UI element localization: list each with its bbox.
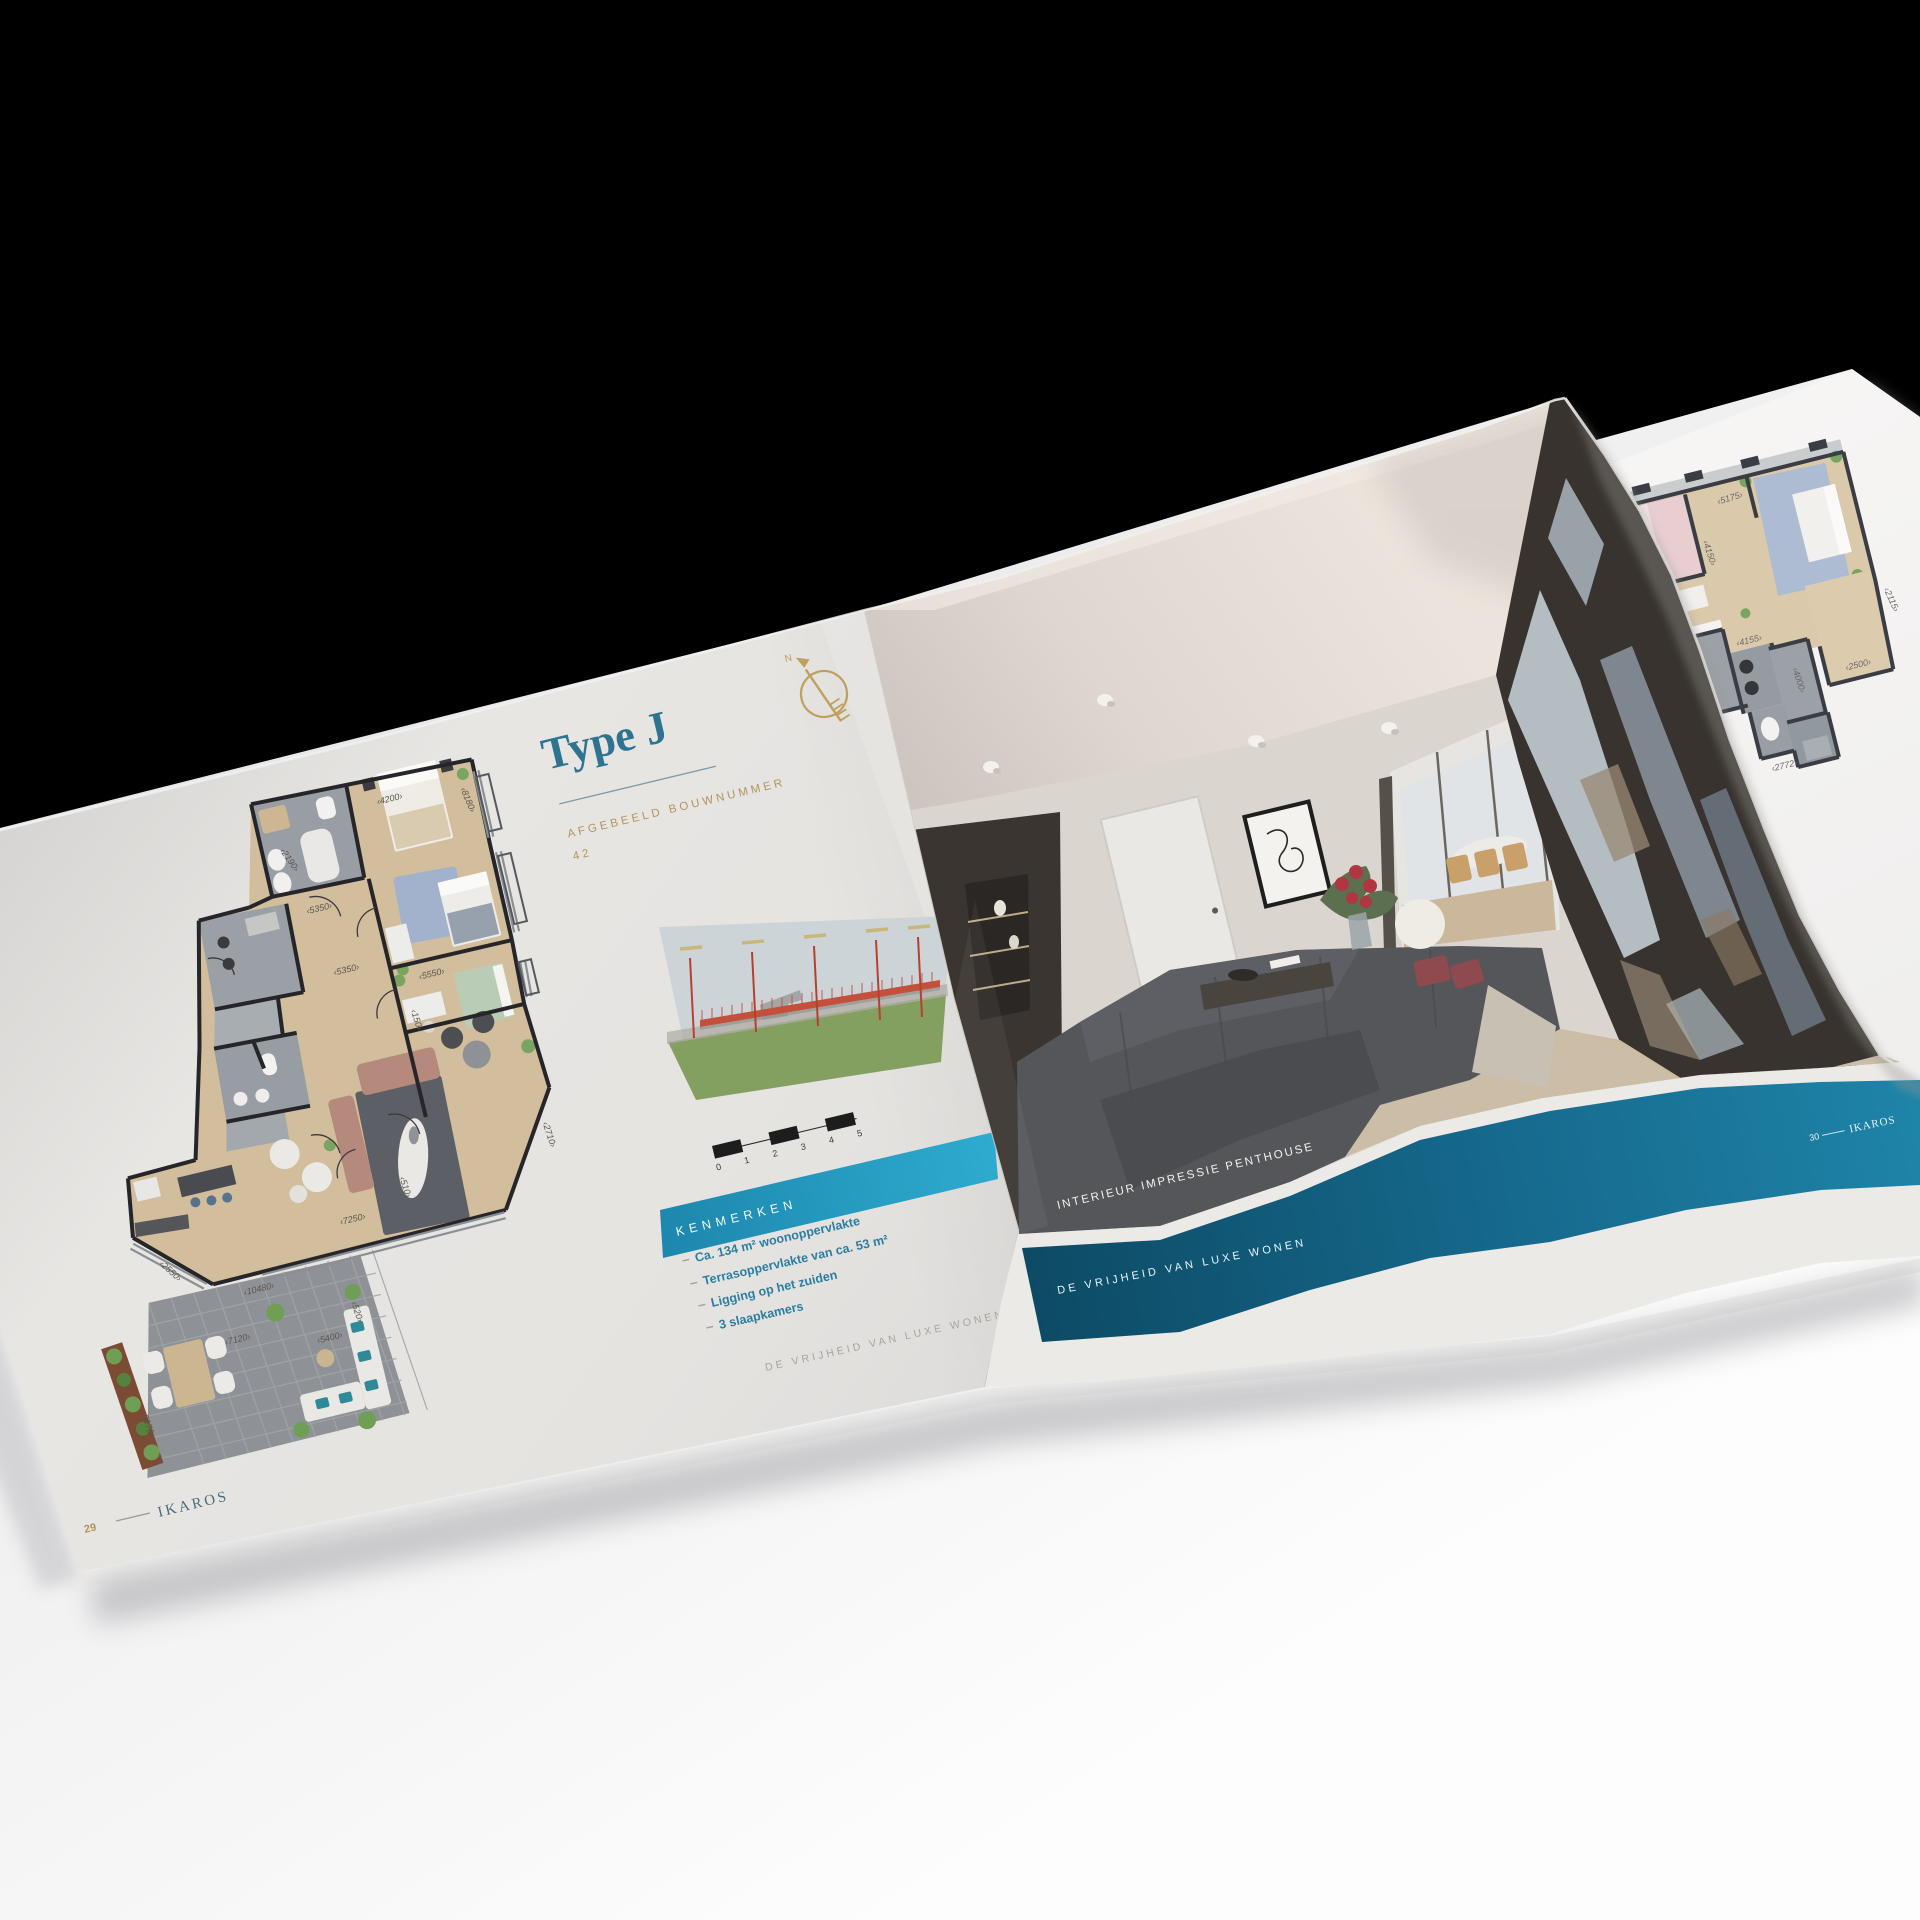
svg-text:30: 30	[1808, 1131, 1820, 1143]
